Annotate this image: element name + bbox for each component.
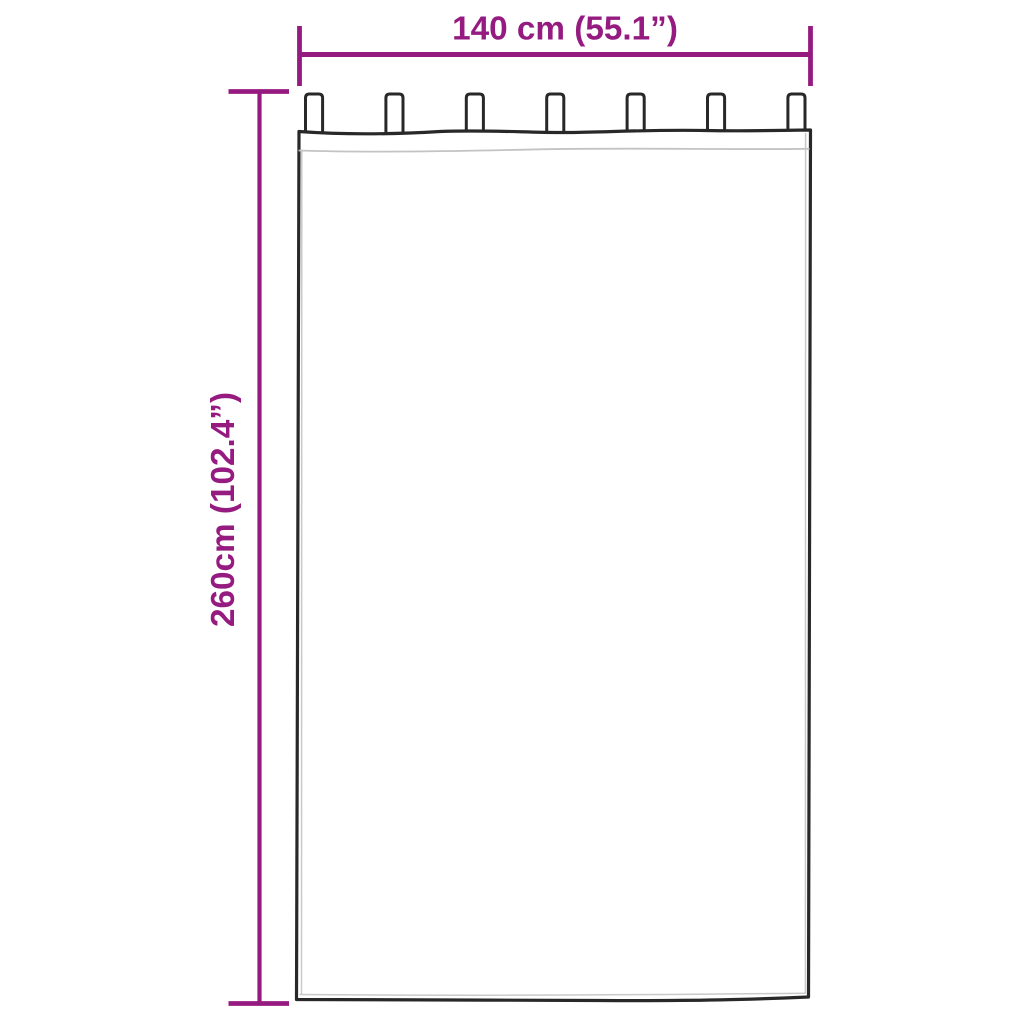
- svg-text:260cm (102.4”): 260cm (102.4”): [205, 392, 242, 627]
- svg-text:140 cm (55.1”): 140 cm (55.1”): [452, 10, 678, 47]
